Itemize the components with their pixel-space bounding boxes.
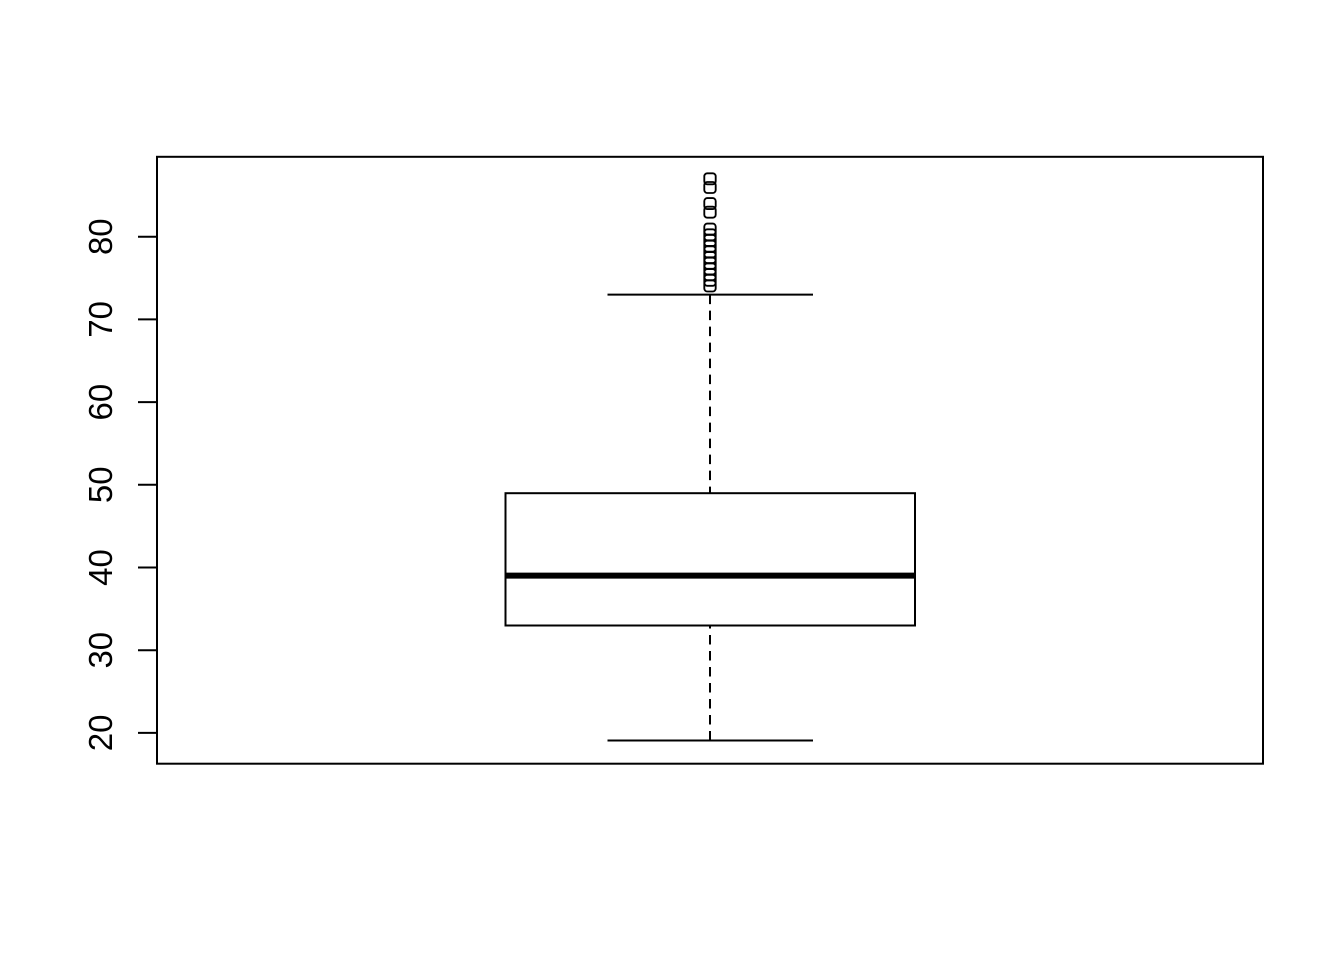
svg-text:60: 60: [82, 384, 119, 421]
svg-text:80: 80: [82, 218, 119, 255]
svg-text:50: 50: [82, 466, 119, 503]
svg-text:40: 40: [82, 549, 119, 586]
svg-text:70: 70: [82, 301, 119, 338]
svg-text:30: 30: [82, 632, 119, 669]
svg-text:20: 20: [82, 715, 119, 752]
